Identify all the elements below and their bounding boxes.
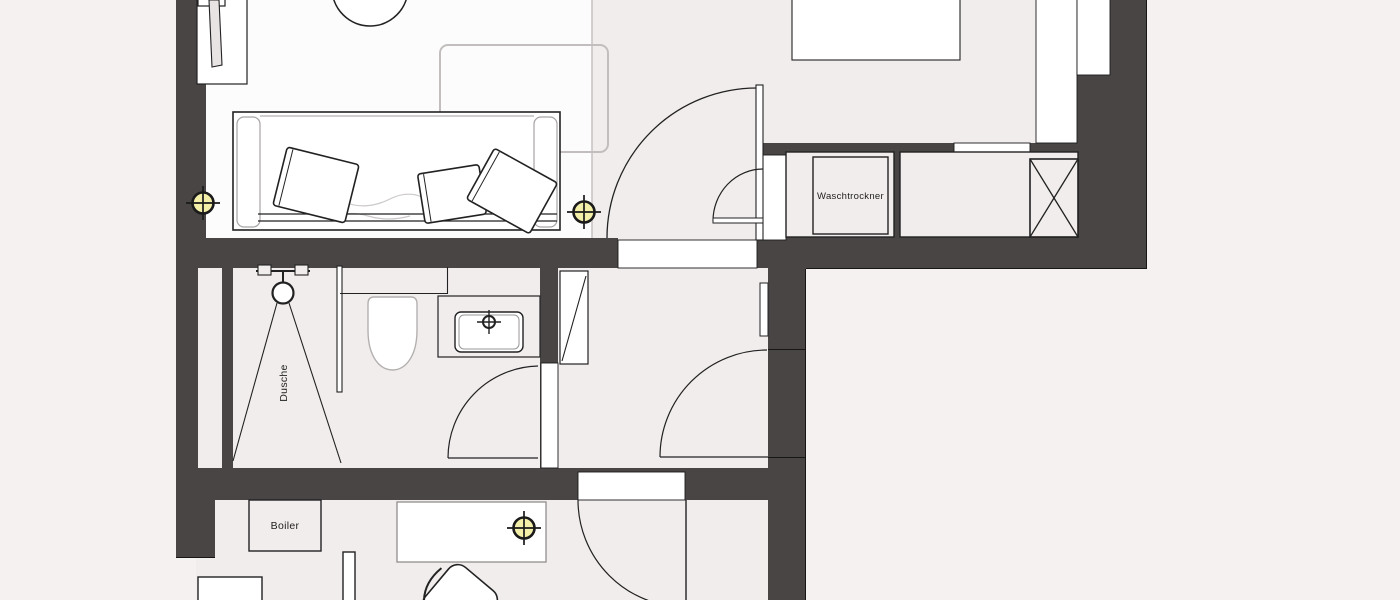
door-opening-hall	[618, 240, 757, 268]
sofa	[233, 112, 560, 234]
table-top-right	[792, 0, 960, 60]
wall-bottom-band	[176, 468, 805, 500]
floorplan-canvas: Dusche Waschtrockner	[0, 0, 1400, 600]
sliding-door-leaf	[760, 283, 768, 336]
boiler-label: Boiler	[271, 520, 300, 532]
shaft-opening-1	[1036, 0, 1077, 143]
lower-hall	[560, 271, 588, 364]
shower-head-icon	[273, 283, 294, 304]
shaft-cross-box	[1030, 159, 1078, 237]
toilet	[368, 297, 417, 370]
wall-bath-inner-left	[222, 266, 233, 470]
floorplan-svg: Dusche Waschtrockner	[0, 0, 1400, 600]
door-leaf-hall	[756, 85, 763, 240]
partition-stub	[343, 552, 355, 600]
wall-livingroom-bottom	[176, 238, 618, 268]
shaft-opening-2	[1077, 0, 1110, 75]
washer-dryer-label: Waschtrockner	[817, 191, 884, 202]
sofa-arm-left	[237, 117, 260, 227]
wall-left-bottom	[176, 500, 215, 557]
wall-stub	[757, 240, 763, 268]
shower-label: Dusche	[278, 364, 290, 401]
wall-gap	[954, 143, 1030, 152]
door-leaf-niche	[713, 218, 763, 223]
door-opening-bottom	[578, 472, 685, 500]
wardrobe	[197, 0, 247, 84]
shower-partition	[337, 266, 342, 392]
cabinet-bottom-left	[198, 577, 262, 600]
utility-niche: Waschtrockner	[786, 152, 1078, 237]
wall-bath-outer-left	[176, 266, 198, 470]
wall-right-vertical	[768, 268, 805, 600]
door-opening-bath	[541, 363, 558, 468]
door-opening-niche	[763, 155, 786, 240]
